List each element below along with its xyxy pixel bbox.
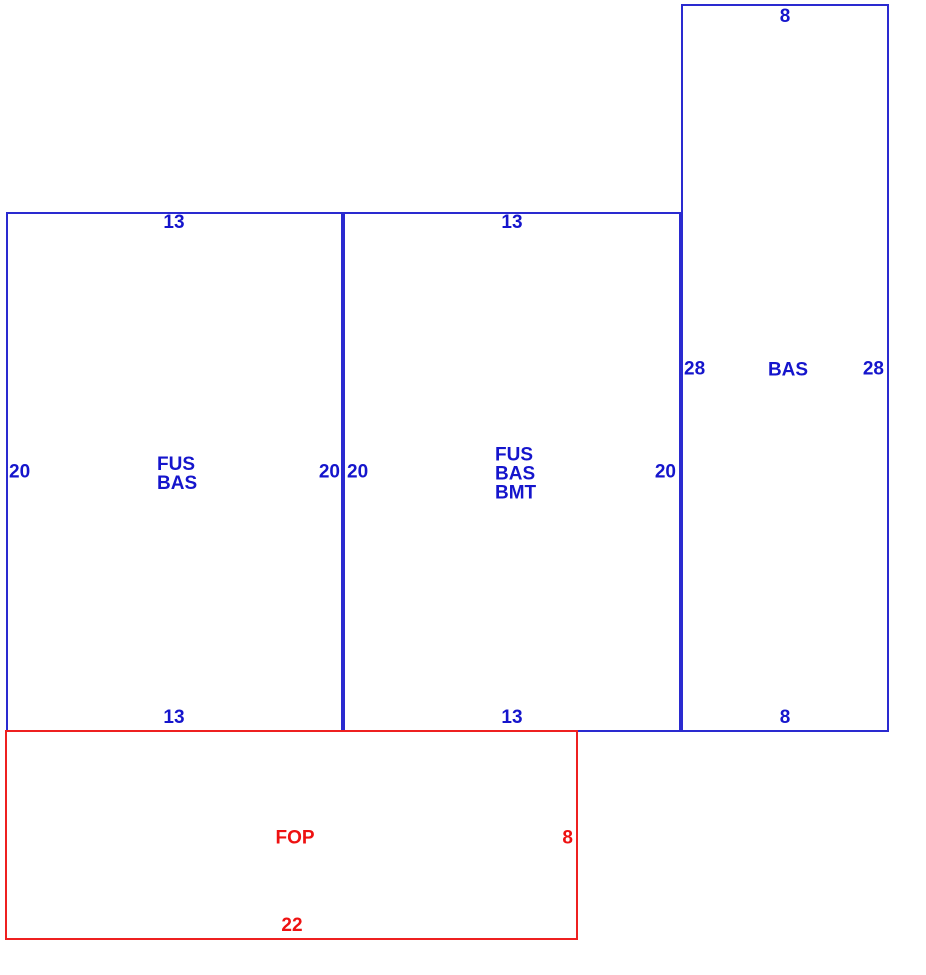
dimension-top-bas: 8 [780,7,791,26]
area-label-line: FUS [157,454,195,475]
dimension-bottom-fus-bas-bmt: 13 [501,708,522,727]
area-label-fop: FOP [275,829,314,848]
dimension-right-fus-bas: 20 [319,463,340,482]
area-label-line: BAS [157,473,197,494]
dimension-left-fus-bas-bmt: 20 [347,463,368,482]
dimension-left-fus-bas: 20 [9,463,30,482]
dimension-left-bas: 28 [684,360,705,379]
area-label-fus-bas: FUSBAS [157,455,197,493]
dimension-right-fop: 8 [562,829,573,848]
area-label-fus-bas-bmt: FUSBASBMT [495,446,536,503]
dimension-right-bas: 28 [863,360,884,379]
dimension-bottom-fus-bas: 13 [163,708,184,727]
dimension-right-fus-bas-bmt: 20 [655,463,676,482]
dimension-top-fus-bas: 13 [163,213,184,232]
dimension-bottom-bas: 8 [780,708,791,727]
area-label-line: BMT [495,483,536,504]
area-label-line: FUS [495,445,533,466]
area-label-line: BAS [495,464,535,485]
dimension-bottom-fop: 22 [281,916,302,935]
property-sketch-canvas: 13 13 20 20 FUSBAS 13 13 20 20 FUSBASBMT… [0,0,926,975]
dimension-top-fus-bas-bmt: 13 [501,213,522,232]
area-label-bas: BAS [768,361,808,380]
